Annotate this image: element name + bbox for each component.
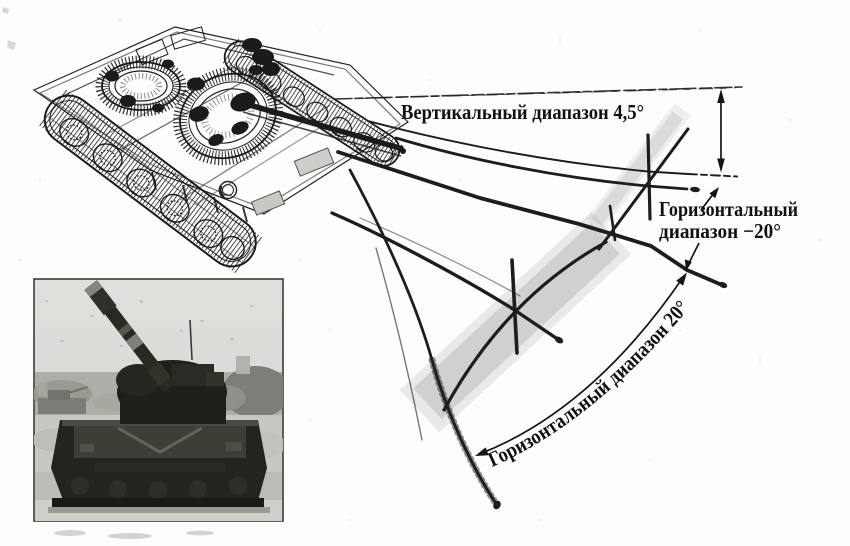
- svg-text:Горизонтальный: Горизонтальный: [659, 197, 798, 221]
- svg-text:диапазон −20°: диапазон −20°: [659, 219, 781, 243]
- svg-text:Вертикальный диапазон 4,5°: Вертикальный диапазон 4,5°: [401, 100, 644, 124]
